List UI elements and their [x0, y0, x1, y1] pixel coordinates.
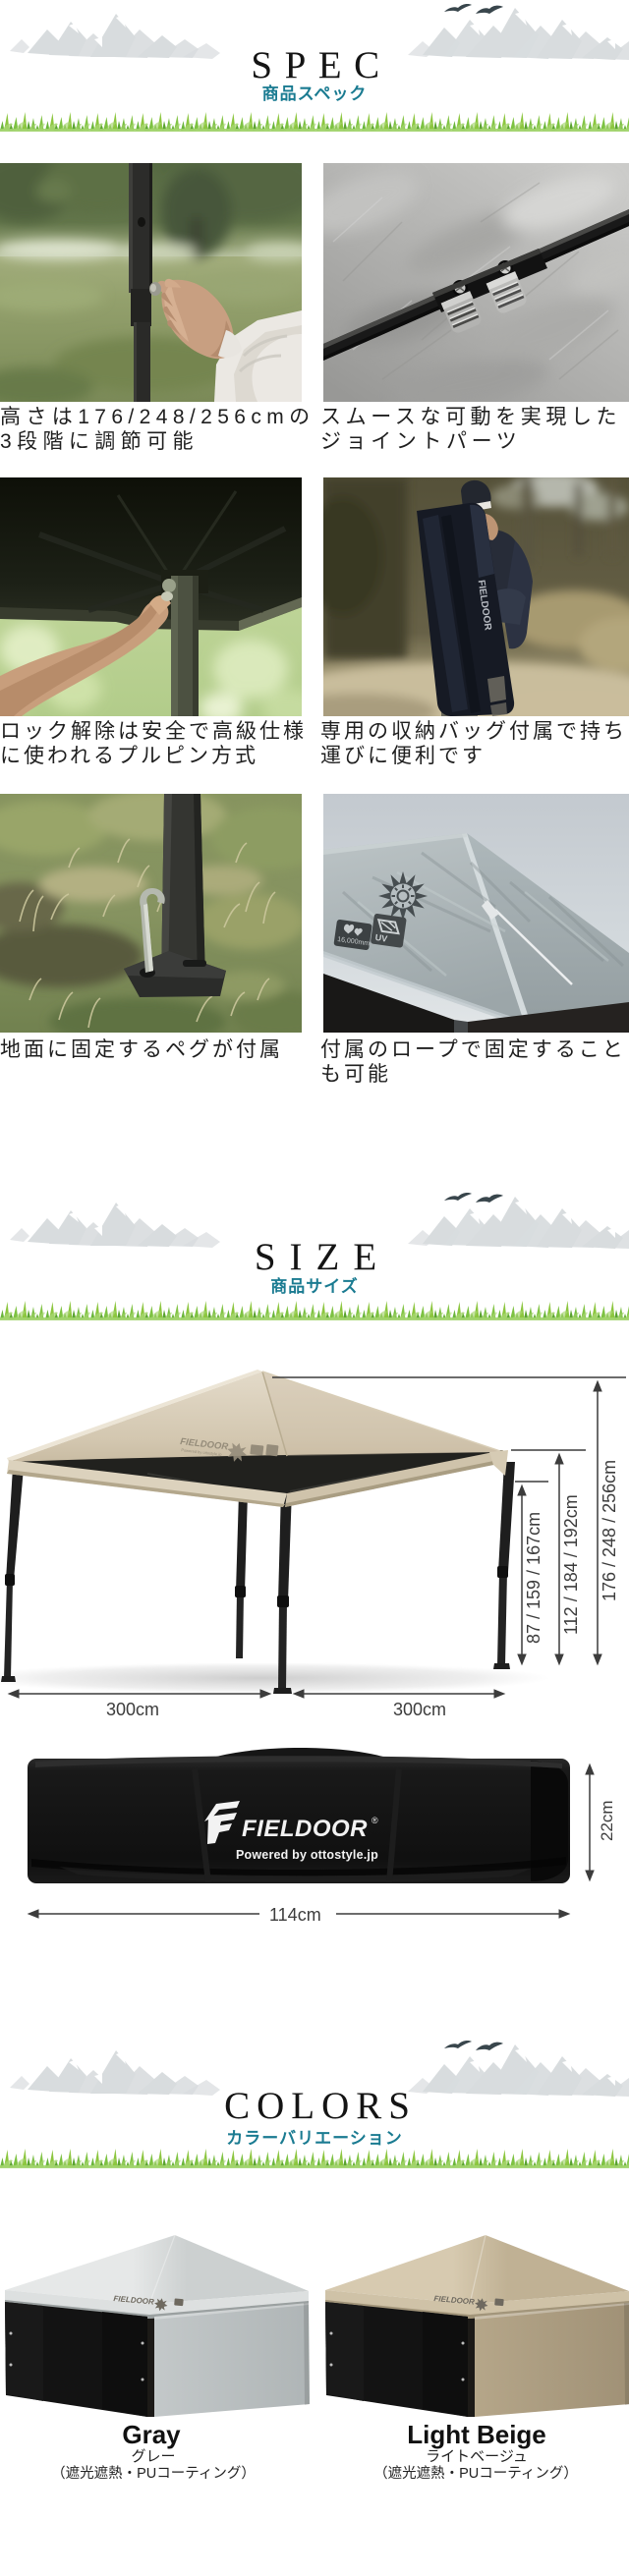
svg-text:176 / 248 / 256cm: 176 / 248 / 256cm	[600, 1460, 619, 1601]
svg-text:300cm: 300cm	[106, 1700, 159, 1719]
svg-text:112 / 184 / 192cm: 112 / 184 / 192cm	[561, 1494, 581, 1635]
svg-text:FIELDOOR: FIELDOOR	[242, 1816, 368, 1842]
svg-text:®: ®	[372, 1816, 378, 1825]
svg-text:22cm: 22cm	[598, 1800, 616, 1841]
svg-text:300cm: 300cm	[393, 1700, 446, 1719]
svg-text:UV: UV	[374, 932, 388, 944]
svg-text:Powered by ottostyle.jp: Powered by ottostyle.jp	[236, 1848, 378, 1862]
svg-text:114cm: 114cm	[269, 1905, 321, 1925]
svg-text:87 / 159 / 167cm: 87 / 159 / 167cm	[524, 1512, 543, 1644]
